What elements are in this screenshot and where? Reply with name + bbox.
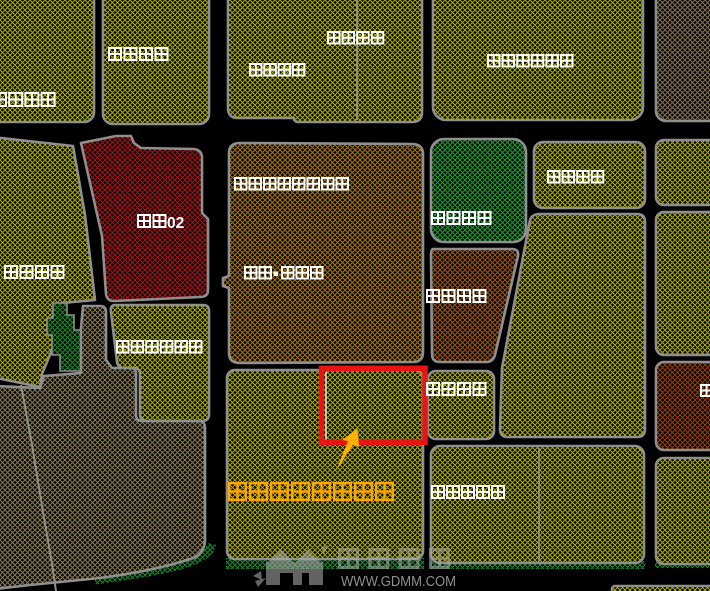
svg-text:WWW.GDMM.COM: WWW.GDMM.COM <box>341 573 456 590</box>
svg-text:02: 02 <box>167 215 184 232</box>
